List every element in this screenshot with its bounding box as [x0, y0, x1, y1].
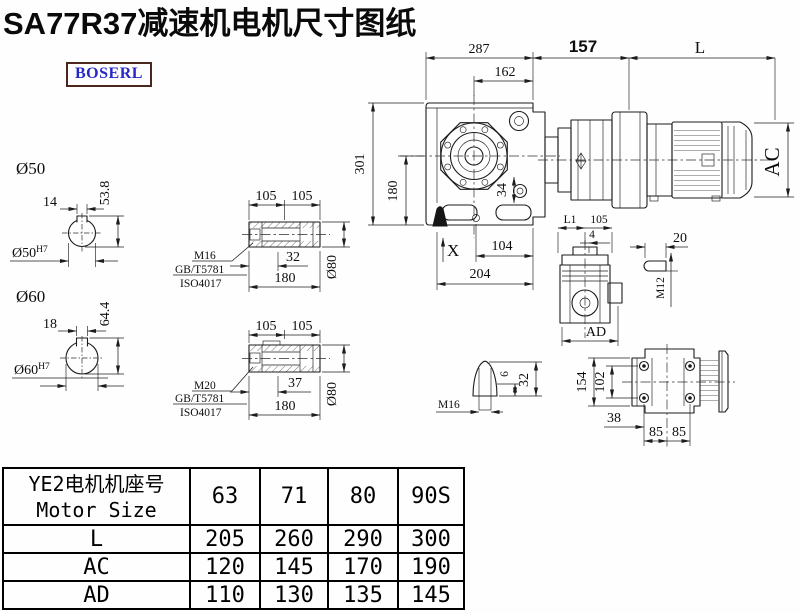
dim-53-8: 53.8	[98, 181, 113, 206]
bore60-fit: Ø60H7	[14, 362, 50, 378]
dim-180: 180	[386, 181, 401, 202]
key-detail: 20 M12	[630, 231, 688, 307]
shaft-b-length: 180	[275, 399, 296, 414]
shaft-a-dim-105-2: 105	[292, 189, 313, 204]
cell-AD-71: 130	[260, 581, 328, 609]
dim-18: 18	[43, 317, 57, 332]
cell-L-90s: 300	[398, 525, 464, 553]
gearbox-rear-view: 154 102 38 85 85	[575, 344, 735, 447]
cell-AC-71: 145	[260, 553, 328, 581]
shaft-b-dim-105-2: 105	[292, 319, 313, 334]
cell-AD-90s: 145	[398, 581, 464, 609]
dim-14: 14	[43, 195, 57, 210]
col-71: 71	[260, 468, 328, 525]
table-row-AD: AD 110 130 135 145	[3, 581, 464, 609]
shaft-a-depth: 32	[286, 250, 300, 265]
dim-105-side: 105	[590, 214, 608, 226]
dim-34: 34	[495, 183, 510, 197]
dim-287: 287	[469, 42, 490, 57]
dim-85-1: 85	[649, 425, 663, 440]
dim-162: 162	[495, 65, 516, 80]
dim-204: 204	[470, 267, 491, 282]
dim-6: 6	[499, 371, 511, 377]
row-label-AC: AC	[3, 553, 190, 581]
shaft-a-std1: GB/T5781	[175, 264, 224, 276]
cell-L-80: 290	[328, 525, 398, 553]
table-row-AC: AC 120 145 170 190	[3, 553, 464, 581]
bore-detail-60: Ø60 18 64.4 Ø60H7	[12, 287, 124, 391]
thread-M12: M12	[655, 277, 667, 299]
shaft-b-screw: M20	[194, 380, 216, 392]
technical-drawing: 287 162 157 L AC 301 180 34 X	[0, 0, 800, 460]
table-row-L: L 205 260 290 300	[3, 525, 464, 553]
hollow-shaft-section-b: 105 105 M20 GB/T5781 ISO4017 37 180 Ø80	[173, 319, 350, 420]
cell-L-71: 260	[260, 525, 328, 553]
motor-end-view: L1 105 4 AD	[558, 214, 622, 346]
balance-mark	[576, 153, 586, 169]
shaft-b-dia: Ø80	[325, 382, 340, 406]
dim-85-2: 85	[672, 425, 686, 440]
plug-detail: M16 6 32	[436, 361, 542, 412]
cell-AD-63: 110	[190, 581, 260, 609]
dim-157: 157	[569, 37, 597, 56]
dim-154: 154	[575, 372, 590, 393]
shaft-a-dia: Ø80	[325, 255, 340, 279]
dim-301: 301	[353, 154, 368, 175]
bore-detail-50: Ø50 14 53.8 Ø50H7	[10, 159, 124, 267]
table-header-row: YE2电机机座号 Motor Size 63 71 80 90S	[3, 468, 464, 525]
motor-assembly-side-view	[538, 112, 772, 208]
dim-AD: AD	[586, 325, 606, 340]
table-header-en: Motor Size	[4, 497, 189, 523]
dim-L: L	[695, 38, 705, 57]
col-90s: 90S	[398, 468, 464, 525]
col-63: 63	[190, 468, 260, 525]
shaft-a-screw: M16	[194, 250, 216, 262]
cell-AC-63: 120	[190, 553, 260, 581]
shaft-a-std2: ISO4017	[180, 278, 222, 290]
cell-AC-90s: 190	[398, 553, 464, 581]
dim-20: 20	[673, 231, 687, 246]
dim-102: 102	[593, 372, 608, 393]
cell-L-63: 205	[190, 525, 260, 553]
shaft-a-dim-105-1: 105	[256, 189, 277, 204]
plug-thread: M16	[438, 399, 460, 411]
dim-4: 4	[589, 229, 595, 241]
hollow-shaft-section-a: 105 105 M16 GB/T5781 ISO4017 32 180 Ø80	[173, 189, 350, 292]
dim-L1: L1	[564, 214, 577, 226]
bore50-label: Ø50	[16, 159, 45, 178]
shaft-b-std2: ISO4017	[180, 407, 222, 419]
row-label-AD: AD	[3, 581, 190, 609]
bore60-label: Ø60	[16, 287, 45, 306]
mark-x: X	[447, 241, 459, 260]
dim-38: 38	[607, 411, 621, 426]
motor-size-table: YE2电机机座号 Motor Size 63 71 80 90S L 205 2…	[2, 467, 465, 610]
drawing-sheet: SA77R37减速机电机尺寸图纸 BOSERL	[0, 0, 800, 613]
shaft-b-depth: 37	[288, 376, 302, 391]
dim-32-plug: 32	[517, 373, 532, 387]
row-label-L: L	[3, 525, 190, 553]
cell-AC-80: 170	[328, 553, 398, 581]
gearbox-front-view	[398, 95, 560, 238]
drain-plug	[433, 207, 447, 226]
table-header-cn: YE2电机机座号	[4, 471, 189, 497]
table-header-cell: YE2电机机座号 Motor Size	[3, 468, 190, 525]
shaft-a-length: 180	[275, 271, 296, 286]
dim-104: 104	[492, 239, 513, 254]
dim-64-4: 64.4	[98, 302, 113, 327]
dim-AC: AC	[760, 147, 784, 176]
cell-AD-80: 135	[328, 581, 398, 609]
shaft-b-dim-105-1: 105	[256, 319, 277, 334]
col-80: 80	[328, 468, 398, 525]
bore50-fit: Ø50H7	[12, 245, 48, 261]
shaft-b-std1: GB/T5781	[175, 393, 224, 405]
